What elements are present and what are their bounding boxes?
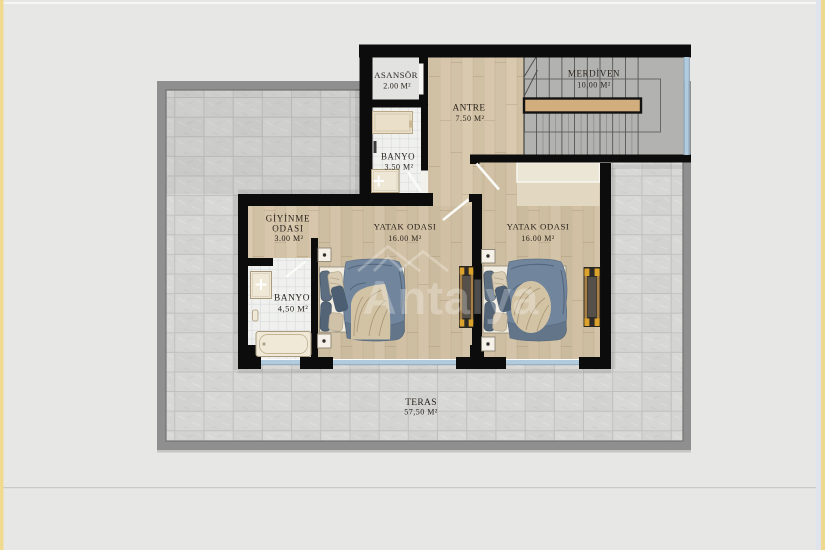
svg-text:57,50 M²: 57,50 M² (404, 408, 438, 417)
svg-text:4,50 M²: 4,50 M² (278, 304, 309, 314)
svg-text:MERDİVEN: MERDİVEN (568, 69, 620, 79)
svg-text:ASANSÖR: ASANSÖR (374, 70, 418, 80)
svg-text:TERAS: TERAS (405, 398, 437, 408)
svg-text:3.50 M²: 3.50 M² (384, 163, 413, 172)
svg-text:10,00 M²: 10,00 M² (577, 81, 611, 90)
svg-text:16.00 M²: 16.00 M² (388, 234, 422, 243)
svg-text:YATAK ODASI: YATAK ODASI (507, 222, 570, 232)
svg-text:Antalya: Antalya (363, 271, 540, 324)
svg-text:YATAK ODASI: YATAK ODASI (374, 222, 437, 232)
svg-text:3.00 M²: 3.00 M² (274, 234, 303, 243)
svg-text:ODASI: ODASI (272, 224, 304, 234)
svg-text:16.00 M²: 16.00 M² (521, 234, 555, 243)
svg-text:7.50 M²: 7.50 M² (455, 114, 484, 123)
svg-text:GİYİNME: GİYİNME (266, 214, 311, 224)
svg-text:BANYO: BANYO (381, 152, 415, 162)
svg-text:ANTRE: ANTRE (453, 104, 486, 114)
svg-text:BANYO: BANYO (274, 294, 310, 304)
svg-text:2.00 M²: 2.00 M² (383, 82, 411, 91)
